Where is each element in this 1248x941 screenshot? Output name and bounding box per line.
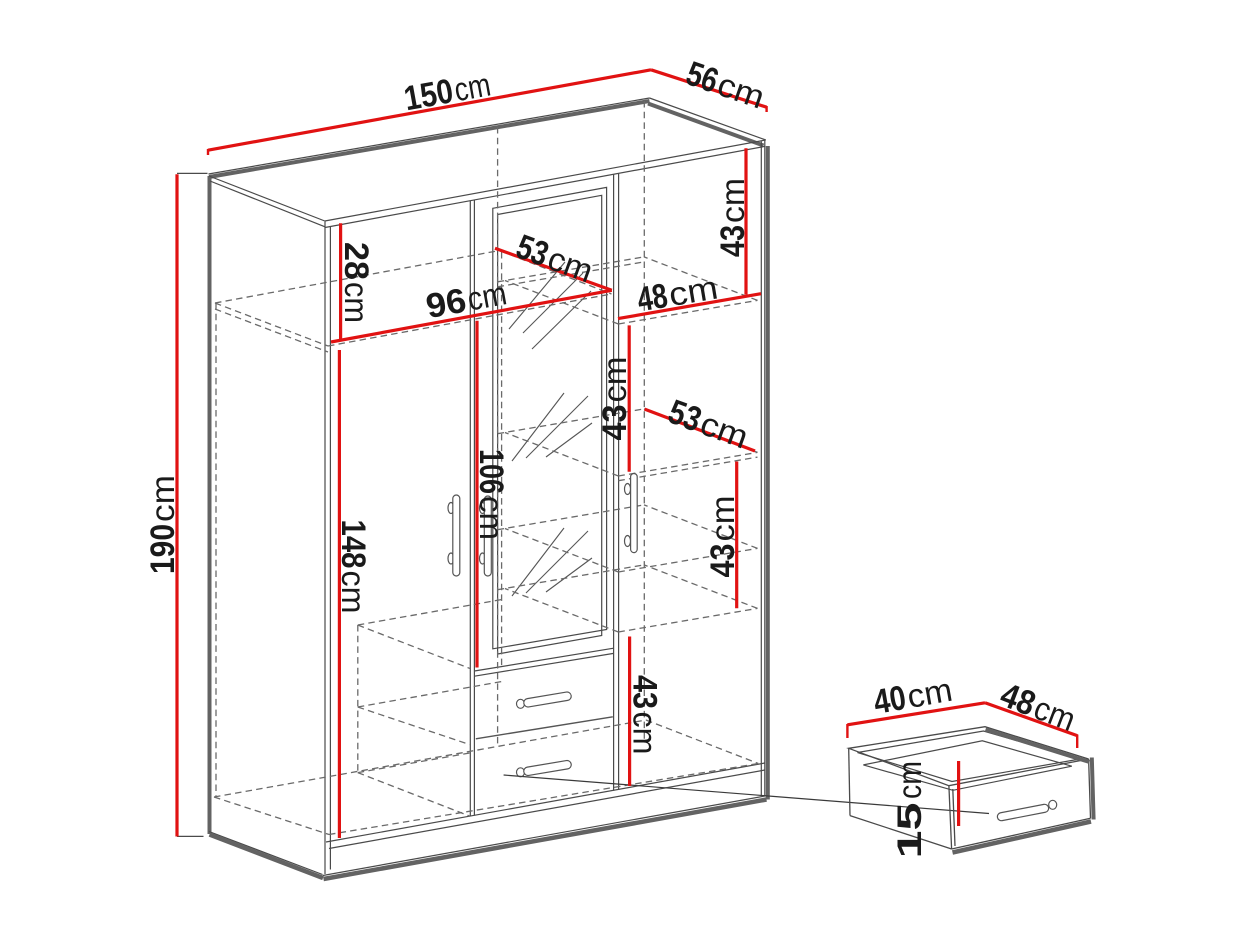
svg-text:cm: cm [451, 65, 493, 108]
svg-text:cm: cm [338, 282, 375, 323]
svg-text:15: 15 [891, 803, 929, 859]
svg-text:106: 106 [472, 449, 510, 494]
svg-text:28: 28 [337, 242, 375, 280]
svg-text:cm: cm [627, 712, 664, 755]
svg-text:43: 43 [596, 405, 634, 441]
svg-text:cm: cm [704, 496, 741, 542]
svg-text:96: 96 [423, 282, 469, 327]
svg-text:cm: cm [464, 274, 509, 317]
svg-text:190: 190 [144, 524, 182, 574]
svg-text:48: 48 [635, 277, 671, 319]
svg-text:43: 43 [704, 544, 742, 578]
svg-text:cm: cm [714, 178, 751, 223]
svg-text:cm: cm [904, 671, 955, 715]
svg-text:43: 43 [714, 225, 752, 257]
svg-text:40: 40 [871, 679, 909, 722]
svg-text:cm: cm [144, 475, 181, 522]
svg-text:43: 43 [626, 675, 664, 709]
svg-text:cm: cm [335, 571, 372, 614]
svg-text:148: 148 [334, 520, 372, 569]
svg-text:cm: cm [596, 357, 633, 403]
svg-text:cm: cm [473, 496, 510, 540]
svg-text:cm: cm [891, 761, 928, 799]
